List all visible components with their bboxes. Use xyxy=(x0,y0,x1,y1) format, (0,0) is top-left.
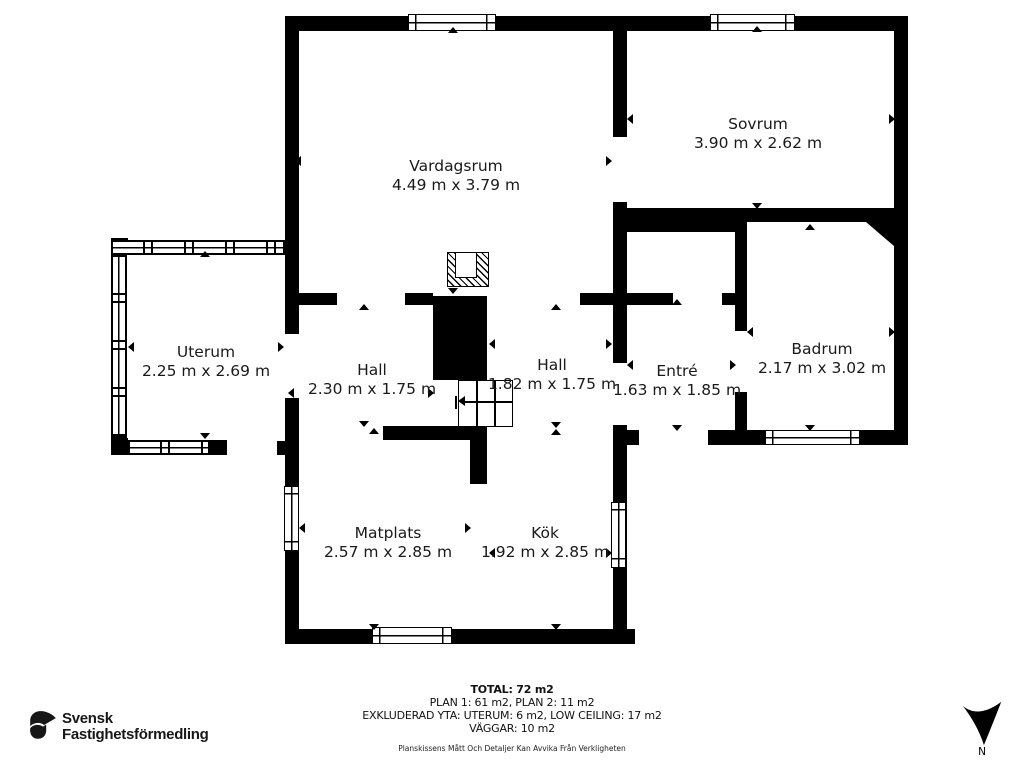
measurement-arrow xyxy=(889,114,895,124)
measurement-arrow xyxy=(359,304,369,310)
room-label-hall-hoger: Hall 1.82 m x 1.75 m xyxy=(488,356,616,394)
company-name-line2: Fastighetsförmedling xyxy=(62,727,209,743)
measurement-arrow xyxy=(128,342,134,352)
disclaimer-text: Planskissens Mått Och Detaljer Kan Avvik… xyxy=(132,742,892,755)
measurement-arrow xyxy=(295,156,301,166)
measurement-arrow xyxy=(489,339,495,349)
chimney-flue xyxy=(455,252,477,278)
room-label-sovrum: Sovrum 3.90 m x 2.62 m xyxy=(694,115,822,153)
room-dimensions: 1.82 m x 1.75 m xyxy=(488,375,616,394)
chimney-stack xyxy=(433,296,487,380)
wall xyxy=(285,629,635,644)
wall xyxy=(285,16,908,31)
stair-direction-line xyxy=(463,401,512,403)
room-label-entre: Entré 1.63 m x 1.85 m xyxy=(613,362,741,400)
room-label-uterum: Uterum 2.25 m x 2.69 m xyxy=(142,343,270,381)
measurement-arrow xyxy=(889,327,895,337)
measurement-arrow xyxy=(200,433,210,439)
room-dimensions: 2.25 m x 2.69 m xyxy=(142,362,270,381)
room-name: Entré xyxy=(613,362,741,381)
measurement-arrow xyxy=(278,342,284,352)
room-label-hall-vanster: Hall 2.30 m x 1.75 m xyxy=(308,361,436,399)
measurement-arrow xyxy=(627,114,633,124)
measurement-arrow xyxy=(369,624,379,630)
wall xyxy=(613,222,740,232)
window xyxy=(611,502,626,568)
measurement-arrow xyxy=(805,425,815,431)
wall xyxy=(735,293,747,331)
north-label: N xyxy=(958,746,1006,758)
measurement-arrow xyxy=(288,388,294,398)
measurement-arrow xyxy=(200,251,210,257)
measurement-arrow xyxy=(672,299,682,305)
room-name: Matplats xyxy=(324,524,452,543)
room-dimensions: 1.63 m x 1.85 m xyxy=(613,381,741,400)
window xyxy=(284,486,299,551)
wall xyxy=(111,438,128,455)
wall xyxy=(285,293,337,305)
wall xyxy=(405,293,433,305)
wall xyxy=(894,16,908,445)
wall xyxy=(470,440,487,484)
room-label-matplats: Matplats 2.57 m x 2.85 m xyxy=(324,524,452,562)
wall-area: VÄGGAR: 10 m2 xyxy=(132,722,892,735)
north-arrow-icon xyxy=(958,698,1006,748)
excluded-areas: EXKLUDERAD YTA: UTERUM: 6 m2, LOW CEILIN… xyxy=(132,709,892,722)
room-dimensions: 2.57 m x 2.85 m xyxy=(324,543,452,562)
wall xyxy=(277,441,286,455)
measurement-arrow xyxy=(299,523,305,533)
glazed-wall xyxy=(111,255,127,438)
measurement-arrow xyxy=(465,523,471,533)
measurement-arrow xyxy=(551,304,561,310)
stair-direction-arrow xyxy=(458,396,465,406)
room-dimensions: 2.30 m x 1.75 m xyxy=(308,380,436,399)
wall xyxy=(613,293,673,305)
measurement-arrow xyxy=(752,203,762,209)
room-label-vardagsrum: Vardagsrum 4.49 m x 3.79 m xyxy=(392,157,520,195)
measurement-arrow xyxy=(672,425,682,431)
plan-areas: PLAN 1: 61 m2, PLAN 2: 11 m2 xyxy=(132,696,892,709)
wall xyxy=(613,16,627,137)
room-name: Vardagsrum xyxy=(392,157,520,176)
measurement-arrow xyxy=(359,421,369,427)
room-name: Badrum xyxy=(758,340,886,359)
stair-tread-line xyxy=(476,381,478,426)
room-label-kok: Kök 1.92 m x 2.85 m xyxy=(481,524,609,562)
room-name: Hall xyxy=(308,361,436,380)
glazed-wall xyxy=(128,440,210,455)
company-logo: Svensk Fastighetsförmedling xyxy=(28,709,209,742)
chimney-symbol xyxy=(447,252,489,287)
glazed-wall xyxy=(111,240,285,255)
wall xyxy=(613,208,897,222)
measurement-arrow xyxy=(747,327,753,337)
measurement-arrow xyxy=(606,339,612,349)
room-label-badrum: Badrum 2.17 m x 3.02 m xyxy=(758,340,886,378)
stair-direction-tick xyxy=(455,396,457,409)
room-name: Sovrum xyxy=(694,115,822,134)
room-name: Hall xyxy=(488,356,616,375)
measurement-arrow xyxy=(369,428,379,434)
room-name: Kök xyxy=(481,524,609,543)
measurement-arrow xyxy=(805,224,815,230)
wall xyxy=(210,440,227,455)
measurement-arrow xyxy=(448,288,458,294)
wall xyxy=(285,16,299,334)
room-dimensions: 4.49 m x 3.79 m xyxy=(392,176,520,195)
wall xyxy=(383,426,487,440)
measurement-arrow xyxy=(551,624,561,630)
total-area: TOTAL: 72 m2 xyxy=(132,683,892,696)
measurement-arrow xyxy=(606,156,612,166)
measurement-arrow xyxy=(752,26,762,32)
north-arrow: N xyxy=(958,698,1006,760)
area-summary: TOTAL: 72 m2 PLAN 1: 61 m2, PLAN 2: 11 m… xyxy=(132,683,892,755)
room-dimensions: 3.90 m x 2.62 m xyxy=(694,134,822,153)
measurement-arrow xyxy=(448,27,458,33)
window xyxy=(372,627,452,644)
floor-plan-page: Vardagsrum 4.49 m x 3.79 m Sovrum 3.90 m… xyxy=(0,0,1024,768)
room-dimensions: 1.92 m x 2.85 m xyxy=(481,543,609,562)
wall xyxy=(580,293,613,305)
sf-logo-icon xyxy=(28,709,58,741)
window xyxy=(765,430,860,445)
company-name: Svensk Fastighetsförmedling xyxy=(62,711,209,742)
room-name: Uterum xyxy=(142,343,270,362)
measurement-arrow xyxy=(551,422,561,428)
wall xyxy=(613,430,639,445)
measurement-arrow xyxy=(551,429,561,435)
wall-chamfer xyxy=(866,222,894,246)
room-dimensions: 2.17 m x 3.02 m xyxy=(758,359,886,378)
company-name-line1: Svensk xyxy=(62,711,209,727)
